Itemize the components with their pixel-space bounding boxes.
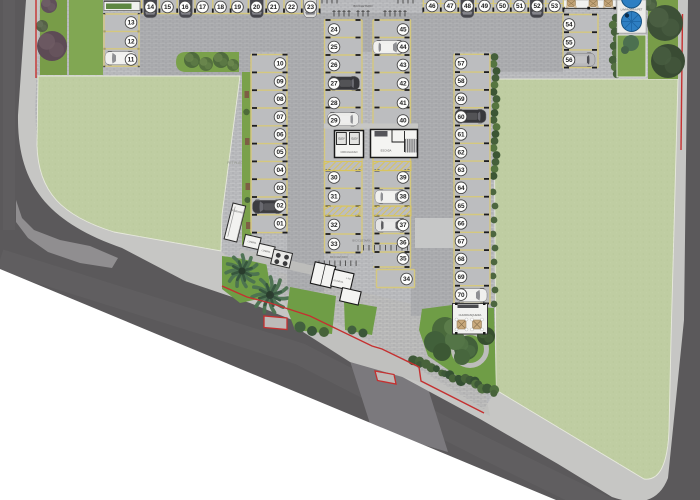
- svg-text:15: 15: [164, 4, 172, 11]
- svg-text:62: 62: [457, 149, 465, 156]
- svg-text:BICICLETARIO: BICICLETARIO: [330, 255, 348, 259]
- svg-text:19: 19: [234, 4, 242, 11]
- svg-text:34: 34: [403, 276, 411, 283]
- svg-text:13: 13: [127, 20, 135, 27]
- svg-text:37: 37: [399, 222, 407, 229]
- svg-text:04: 04: [276, 167, 284, 174]
- svg-text:01: 01: [276, 221, 284, 228]
- svg-text:53: 53: [551, 3, 559, 10]
- svg-text:42: 42: [399, 81, 407, 88]
- svg-text:18: 18: [217, 4, 225, 11]
- svg-text:57: 57: [457, 60, 465, 67]
- svg-text:49: 49: [481, 3, 489, 10]
- svg-text:26: 26: [330, 62, 338, 69]
- svg-text:03: 03: [276, 185, 284, 192]
- svg-text:68: 68: [457, 256, 465, 263]
- svg-text:33: 33: [330, 241, 338, 248]
- svg-text:59: 59: [457, 96, 465, 103]
- svg-text:46: 46: [428, 3, 436, 10]
- svg-text:21: 21: [270, 4, 278, 11]
- svg-text:23: 23: [307, 4, 315, 11]
- svg-text:BICICLETARIO: BICICLETARIO: [352, 239, 372, 243]
- svg-text:27: 27: [330, 81, 338, 88]
- svg-text:56: 56: [565, 57, 573, 64]
- svg-text:LAVANDERIA PET: LAVANDERIA PET: [621, 7, 643, 11]
- svg-text:44: 44: [399, 44, 407, 51]
- svg-text:11: 11: [128, 57, 135, 64]
- svg-text:41: 41: [399, 100, 407, 107]
- svg-text:45: 45: [399, 27, 407, 34]
- svg-text:22: 22: [288, 4, 296, 11]
- svg-text:30: 30: [330, 175, 338, 182]
- svg-text:CHURRASQUEIRA: CHURRASQUEIRA: [459, 313, 482, 317]
- svg-text:05: 05: [276, 149, 284, 156]
- svg-text:54: 54: [565, 22, 573, 29]
- svg-text:65: 65: [457, 203, 465, 210]
- svg-text:07: 07: [276, 114, 284, 121]
- svg-text:14: 14: [147, 4, 155, 11]
- svg-text:35: 35: [399, 256, 407, 263]
- svg-text:06: 06: [276, 132, 284, 139]
- svg-text:64: 64: [457, 185, 465, 192]
- svg-text:CIRCULACAO: CIRCULACAO: [340, 150, 357, 154]
- svg-text:39: 39: [399, 175, 407, 182]
- svg-text:66: 66: [457, 221, 465, 228]
- svg-text:61: 61: [457, 132, 465, 139]
- svg-text:25: 25: [330, 44, 338, 51]
- svg-text:70: 70: [457, 292, 465, 299]
- svg-text:ESCADA: ESCADA: [381, 149, 392, 153]
- svg-text:52: 52: [533, 3, 541, 10]
- svg-text:50: 50: [499, 3, 507, 10]
- svg-text:BICICLETARIO: BICICLETARIO: [353, 4, 373, 8]
- svg-text:29: 29: [330, 118, 338, 125]
- svg-text:ELEV: ELEV: [338, 138, 345, 141]
- svg-text:24: 24: [330, 27, 338, 34]
- svg-text:ELEV: ELEV: [351, 138, 358, 141]
- svg-text:28: 28: [330, 100, 338, 107]
- svg-text:43: 43: [399, 62, 407, 69]
- svg-text:55: 55: [565, 40, 573, 47]
- svg-text:36: 36: [399, 240, 407, 247]
- svg-text:38: 38: [399, 194, 407, 201]
- svg-text:20: 20: [253, 4, 261, 11]
- svg-text:40: 40: [399, 118, 407, 125]
- svg-text:67: 67: [457, 238, 465, 245]
- svg-text:10: 10: [276, 61, 284, 68]
- svg-text:16: 16: [181, 4, 189, 11]
- svg-text:09: 09: [276, 79, 284, 86]
- svg-text:63: 63: [457, 167, 465, 174]
- svg-text:17: 17: [199, 4, 207, 11]
- svg-text:31: 31: [330, 194, 338, 201]
- svg-text:58: 58: [457, 78, 465, 85]
- svg-text:12: 12: [127, 39, 135, 46]
- svg-text:47: 47: [446, 3, 454, 10]
- svg-text:48: 48: [464, 3, 472, 10]
- svg-text:51: 51: [516, 3, 524, 10]
- svg-text:32: 32: [330, 222, 338, 229]
- svg-text:02: 02: [276, 203, 284, 210]
- svg-text:60: 60: [457, 114, 465, 121]
- svg-text:08: 08: [276, 96, 284, 103]
- svg-text:69: 69: [457, 274, 465, 281]
